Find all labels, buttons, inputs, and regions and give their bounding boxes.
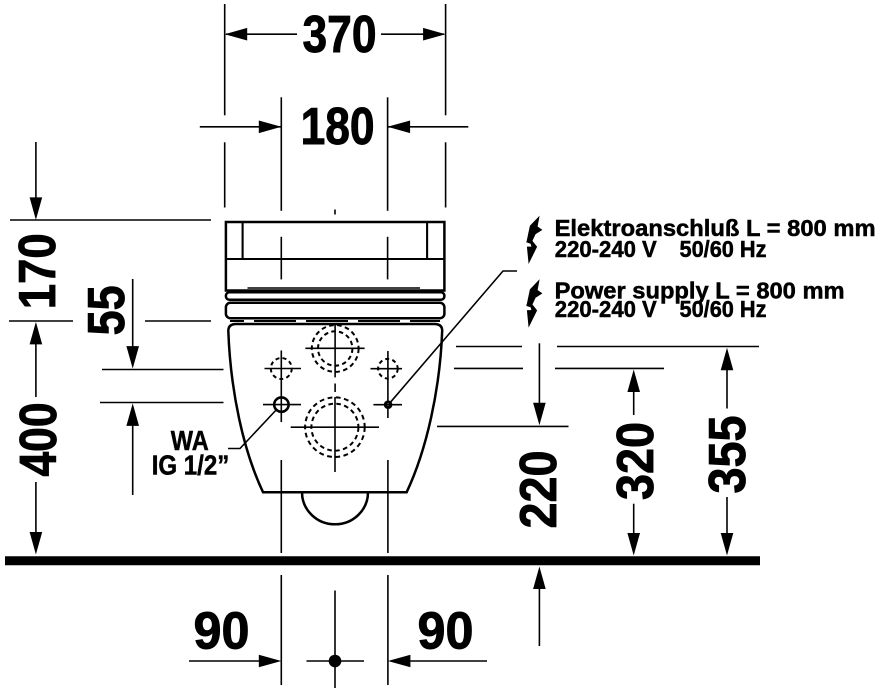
svg-text:320: 320	[607, 422, 665, 500]
svg-text:220-240 V: 220-240 V	[555, 236, 658, 262]
svg-text:55: 55	[78, 285, 136, 335]
svg-text:400: 400	[10, 403, 68, 477]
svg-text:370: 370	[303, 6, 377, 64]
svg-text:170: 170	[9, 233, 67, 309]
svg-text:220: 220	[510, 451, 568, 529]
svg-text:50/60 Hz: 50/60 Hz	[680, 236, 767, 262]
svg-text:180: 180	[301, 98, 375, 156]
svg-text:220-240 V: 220-240 V	[555, 296, 658, 322]
svg-text:IG 1/2”: IG 1/2”	[152, 450, 230, 481]
svg-text:50/60 Hz: 50/60 Hz	[680, 296, 767, 322]
svg-text:355: 355	[699, 416, 757, 494]
svg-text:90: 90	[194, 603, 250, 661]
svg-text:90: 90	[418, 603, 474, 661]
